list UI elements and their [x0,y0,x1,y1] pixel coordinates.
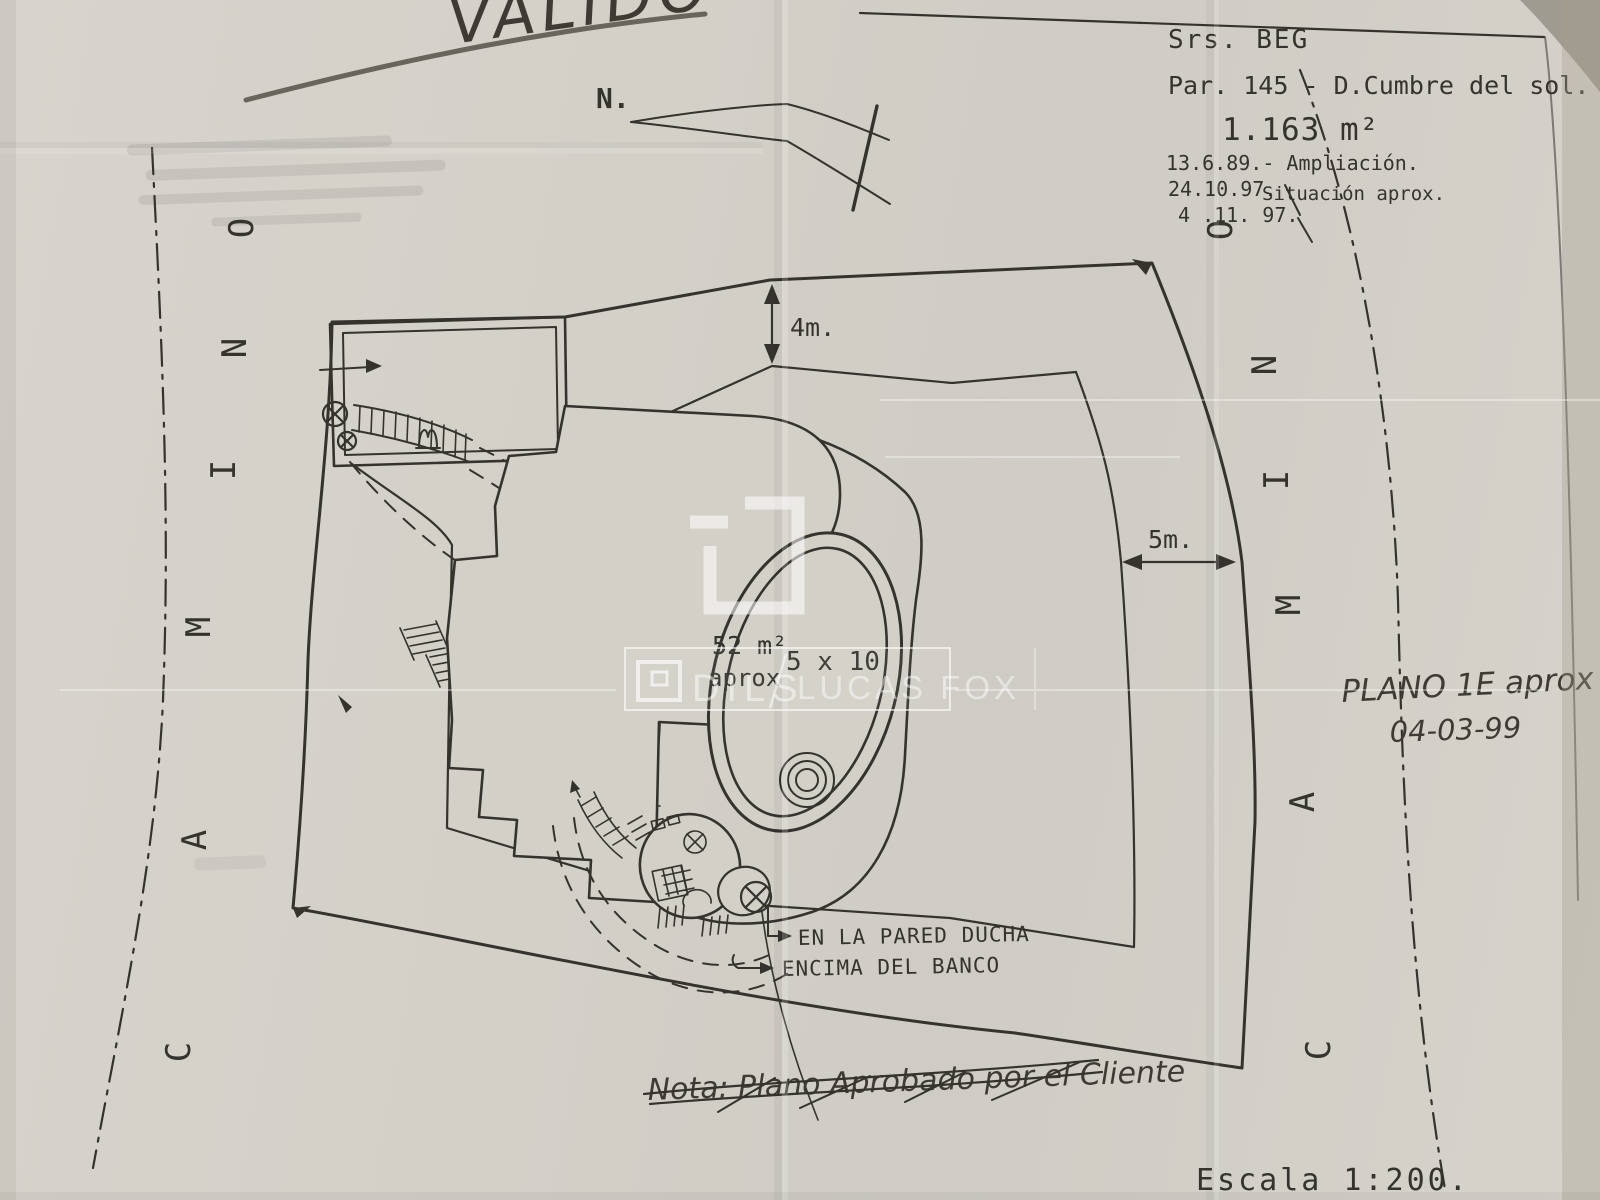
road-right-letter: M [1269,595,1309,615]
crossed-out-note: Nota: Plano Aprobado por el Cliente [644,1054,1186,1112]
north-label: N. [596,82,630,115]
road-left-letter: I [204,460,244,480]
title-rev2-date: 24.10.97. [1168,177,1276,201]
ghost-print [127,134,470,873]
road-left-letter: M [179,617,219,637]
north-arrow [631,104,890,210]
title-rev1: 13.6.89.- Ampliación. [1166,151,1419,175]
road-right-letter: C [1299,1040,1339,1060]
road-right-letters: O N I M A C [1201,220,1339,1060]
title-client: Srs. BEG [1168,25,1309,55]
watermark-brand-right: LUCAS FOX [797,669,1020,706]
road-left-letter: C [159,1042,199,1062]
note-shower-2: ENCIMA DEL BANCO [782,953,1001,981]
scanned-site-plan: N. Srs. BEG Par. 145 - D.Cumbre del sol.… [0,0,1600,1200]
label-4m: 4m. [790,313,835,342]
title-parcel: Par. 145 - D.Cumbre del sol. [1168,71,1589,100]
road-centerline-right [1300,70,1446,1195]
site-plan-svg: N. Srs. BEG Par. 145 - D.Cumbre del sol.… [0,0,1600,1200]
road-left-letter: O [222,218,262,238]
garage-entry-arrow [366,359,382,373]
road-right-letter: N [1245,355,1285,375]
plan-date-handwritten: 04-03-99 [1389,710,1522,749]
note-shower-1: EN LA PARED DUCHA [798,922,1030,950]
road-left-letter: A [175,830,215,850]
crossed-out-note-text: Nota: Plano Aprobado por el Cliente [647,1054,1186,1108]
watermark-brand-left: DILS [692,668,804,710]
road-right-letter: A [1283,792,1323,812]
title-area: 1.163 m² [1222,112,1379,148]
plan-ref-handwritten: PLANO 1E aprox [1341,661,1596,710]
road-right-letter: I [1257,470,1297,490]
title-rev2-note: Situación aprox. [1262,183,1445,205]
road-left-letter: N [215,338,255,358]
road-left-letters: O N I M A C [159,218,262,1062]
label-5m: 5m. [1148,525,1193,554]
road-centerline-left [93,148,166,1168]
